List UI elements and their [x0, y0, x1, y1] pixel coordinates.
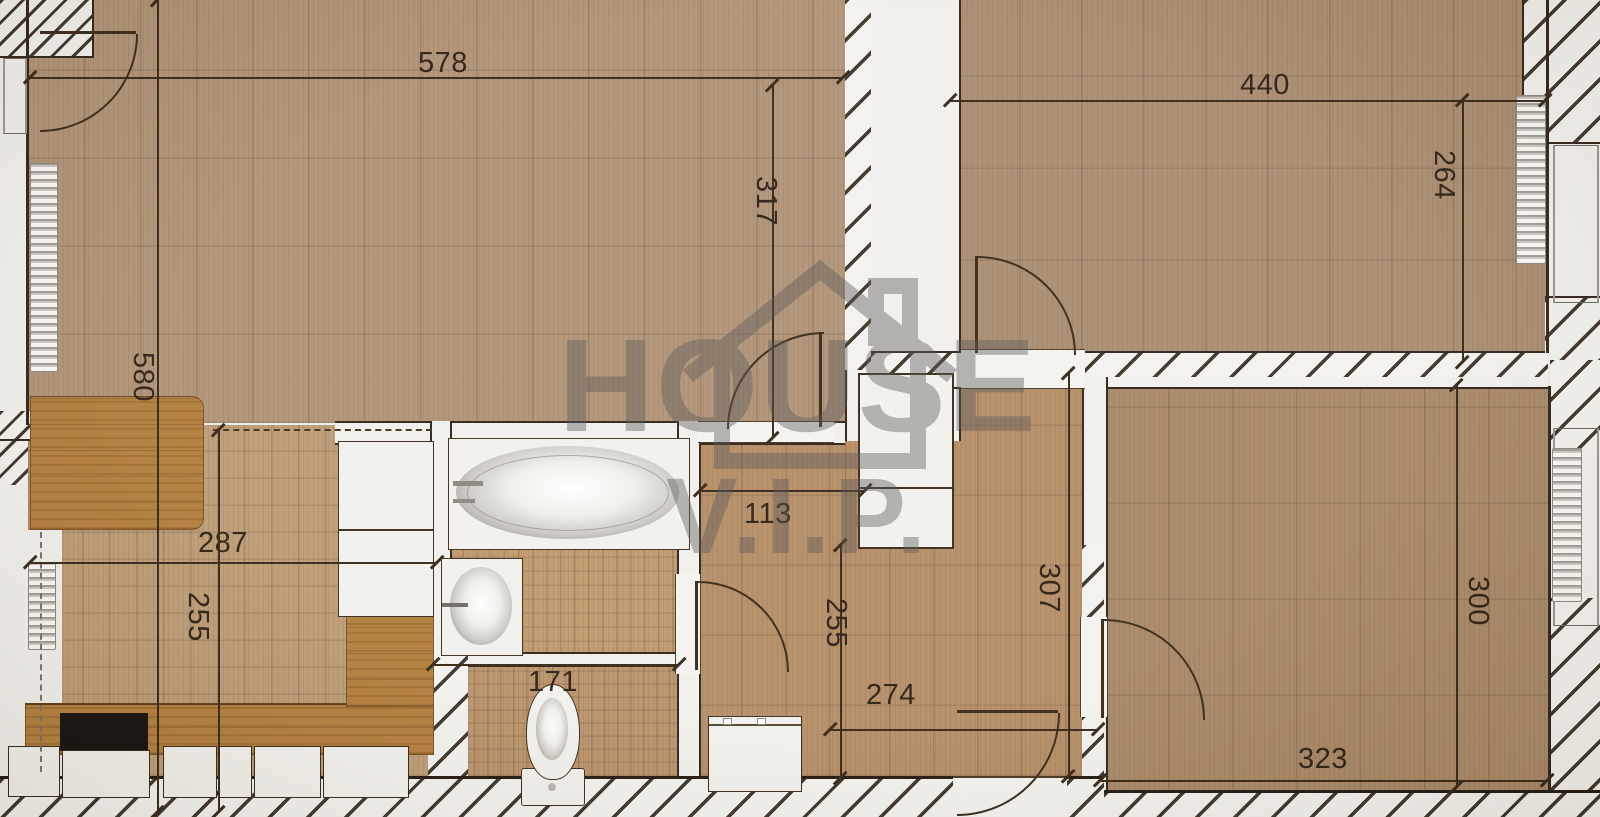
- dim-307-line: [1068, 373, 1070, 776]
- dashed-window-line: [40, 532, 42, 772]
- bathtub-faucet: [453, 481, 483, 486]
- bedroom-top-right-edge-line: [1546, 0, 1549, 353]
- dim-264-label: 264: [1429, 150, 1458, 200]
- wall-hall-bedroom-hatch-a: [1082, 545, 1104, 619]
- dim-300-label: 300: [1463, 576, 1492, 626]
- toilet-flush-button: [548, 783, 556, 791]
- radiator-living-left: [30, 163, 58, 372]
- dim-307-label: 307: [1034, 563, 1063, 613]
- dim-287-line: [30, 562, 437, 564]
- dim-113-line: [700, 490, 865, 492]
- floor-plan: 5785803174402642872551132553072741713003…: [0, 0, 1600, 817]
- dashed-opening-line: [213, 429, 432, 431]
- dim-578-label: 578: [418, 49, 468, 78]
- toilet-bowl-inner: [536, 698, 568, 760]
- right-window-top: [1553, 145, 1599, 303]
- dim-440-label: 440: [1240, 71, 1290, 100]
- kitchen-tall-cabinet: [346, 611, 434, 707]
- kitchen-cabinet-3: [163, 746, 217, 798]
- wardrobe-divider: [860, 487, 952, 489]
- dim-113-label: 113: [744, 500, 792, 529]
- dim-255-left-line: [218, 430, 220, 812]
- closet-divider: [339, 529, 433, 531]
- bottom-wall-bedroom: [1104, 790, 1600, 817]
- table: [30, 396, 204, 530]
- dim-323-label: 323: [1298, 745, 1348, 774]
- bedroom-bottom-right-hatch-b: [1550, 598, 1600, 817]
- dim-255-left-label: 255: [183, 592, 212, 642]
- sink: [441, 558, 523, 656]
- dim-287-label: 287: [198, 529, 248, 558]
- wc-wall-hatch-block: [428, 656, 468, 788]
- right-wall-hatch-mid: [1545, 296, 1600, 364]
- dim-255-hall-label: 255: [821, 598, 850, 648]
- washer-knob-2: [757, 718, 766, 725]
- bathtub: [448, 438, 690, 550]
- bathtub-faucet-2: [453, 499, 475, 503]
- bathtub-inner-ring: [467, 455, 669, 531]
- dim-255-hall-line: [840, 545, 842, 778]
- radiator-bedroom-top: [1516, 95, 1546, 264]
- radiator-bedroom-bottom: [1552, 448, 1582, 602]
- wall-living-hall-hatch: [845, 0, 871, 370]
- dim-171-label: 171: [528, 668, 578, 697]
- dim-317-label: 317: [751, 176, 780, 226]
- radiator-kitchen-left: [28, 562, 56, 650]
- left-window: [3, 58, 27, 134]
- closet: [338, 441, 434, 617]
- dim-580-line: [157, 0, 159, 812]
- dim-274-line: [830, 729, 1098, 731]
- washer-knob: [723, 718, 732, 725]
- toilet-bowl: [526, 684, 580, 780]
- cooktop: [60, 713, 148, 751]
- dim-317-line: [772, 85, 774, 438]
- kitchen-cabinet-1: [8, 746, 60, 797]
- kitchen-cabinet-4: [218, 746, 252, 798]
- kitchen-cabinet-5: [254, 746, 321, 798]
- bedroom-bottom-right-edge-line: [1548, 386, 1551, 792]
- kitchen-cabinet-2: [62, 750, 150, 798]
- bedroom-top-door-threshold: [961, 349, 1085, 389]
- dim-323-line: [1100, 780, 1547, 782]
- washing-machine: [708, 716, 802, 792]
- kitchen-cabinet-6: [323, 746, 409, 798]
- dim-264-line: [1462, 100, 1464, 362]
- dim-300-line: [1456, 385, 1458, 787]
- hallway-wardrobe: [858, 373, 954, 549]
- dim-580-label: 580: [128, 352, 157, 402]
- sink-faucet: [442, 603, 468, 607]
- dim-274-label: 274: [866, 681, 916, 710]
